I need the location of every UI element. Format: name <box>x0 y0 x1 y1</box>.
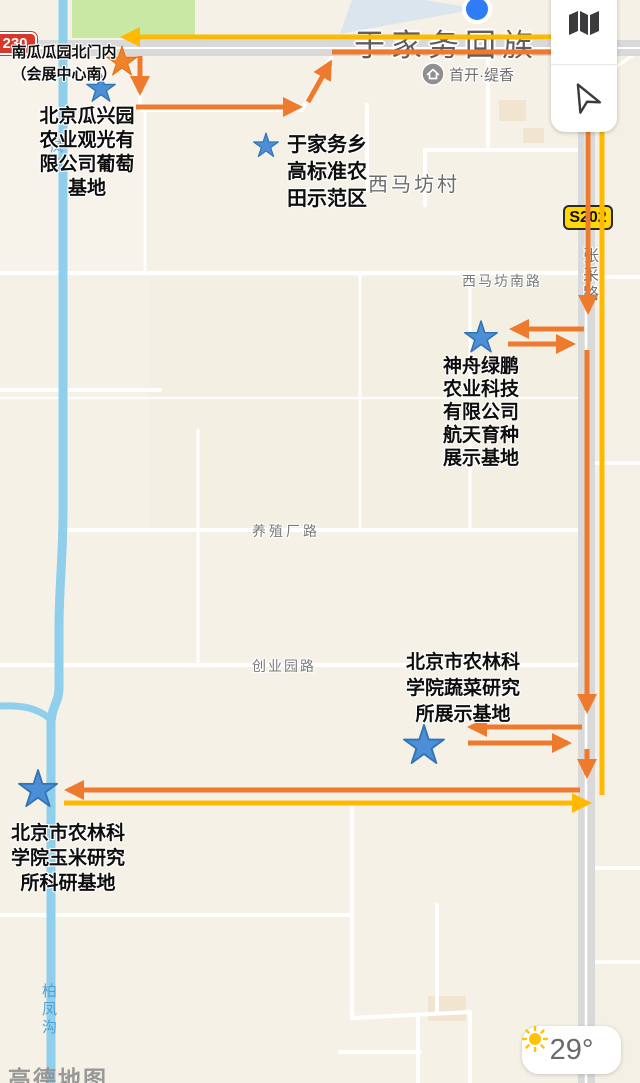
location-beam <box>340 0 477 34</box>
weather-widget[interactable]: 29° <box>522 1026 621 1074</box>
map-tools-panel <box>551 0 617 132</box>
site-label-corn-research: 北京市农林科学院玉米研究 所科研基地 <box>7 821 129 896</box>
site-label-guaxingyuan: 北京瓜兴园农业观光有 限公司葡萄基地 <box>26 105 148 201</box>
site-label-shenzhou-lvpeng: 神舟绿鹏农业科技 有限公司航天育种 展示基地 <box>443 355 519 470</box>
layers-icon[interactable] <box>569 11 599 35</box>
site-label-pumpkin-garden: 南瓜瓜园北门内（会展中心南） <box>2 42 126 86</box>
site-label-high-standard-farmland: 于家务乡高标准农 田示范区 <box>287 132 367 213</box>
site-star-marker <box>19 770 57 806</box>
navigation-icon[interactable] <box>568 79 600 112</box>
watermark: 高德地图 <box>8 1060 108 1083</box>
site-label-vegetable-research: 北京市农林科学院蔬菜研究 所展示基地 <box>402 650 524 728</box>
site-star-marker <box>254 133 279 157</box>
sun-icon <box>522 1026 548 1052</box>
panel-divider <box>551 64 617 65</box>
site-star-marker <box>465 321 497 352</box>
site-star-marker <box>404 725 444 763</box>
location-dot <box>464 0 490 22</box>
temperature-value: 29° <box>550 1034 594 1067</box>
map-canvas: 于家务回族 西马坊村 西马坊南路 养殖厂路 创业园路 张采路 柏凤沟 凤沟 首开… <box>0 0 640 1083</box>
